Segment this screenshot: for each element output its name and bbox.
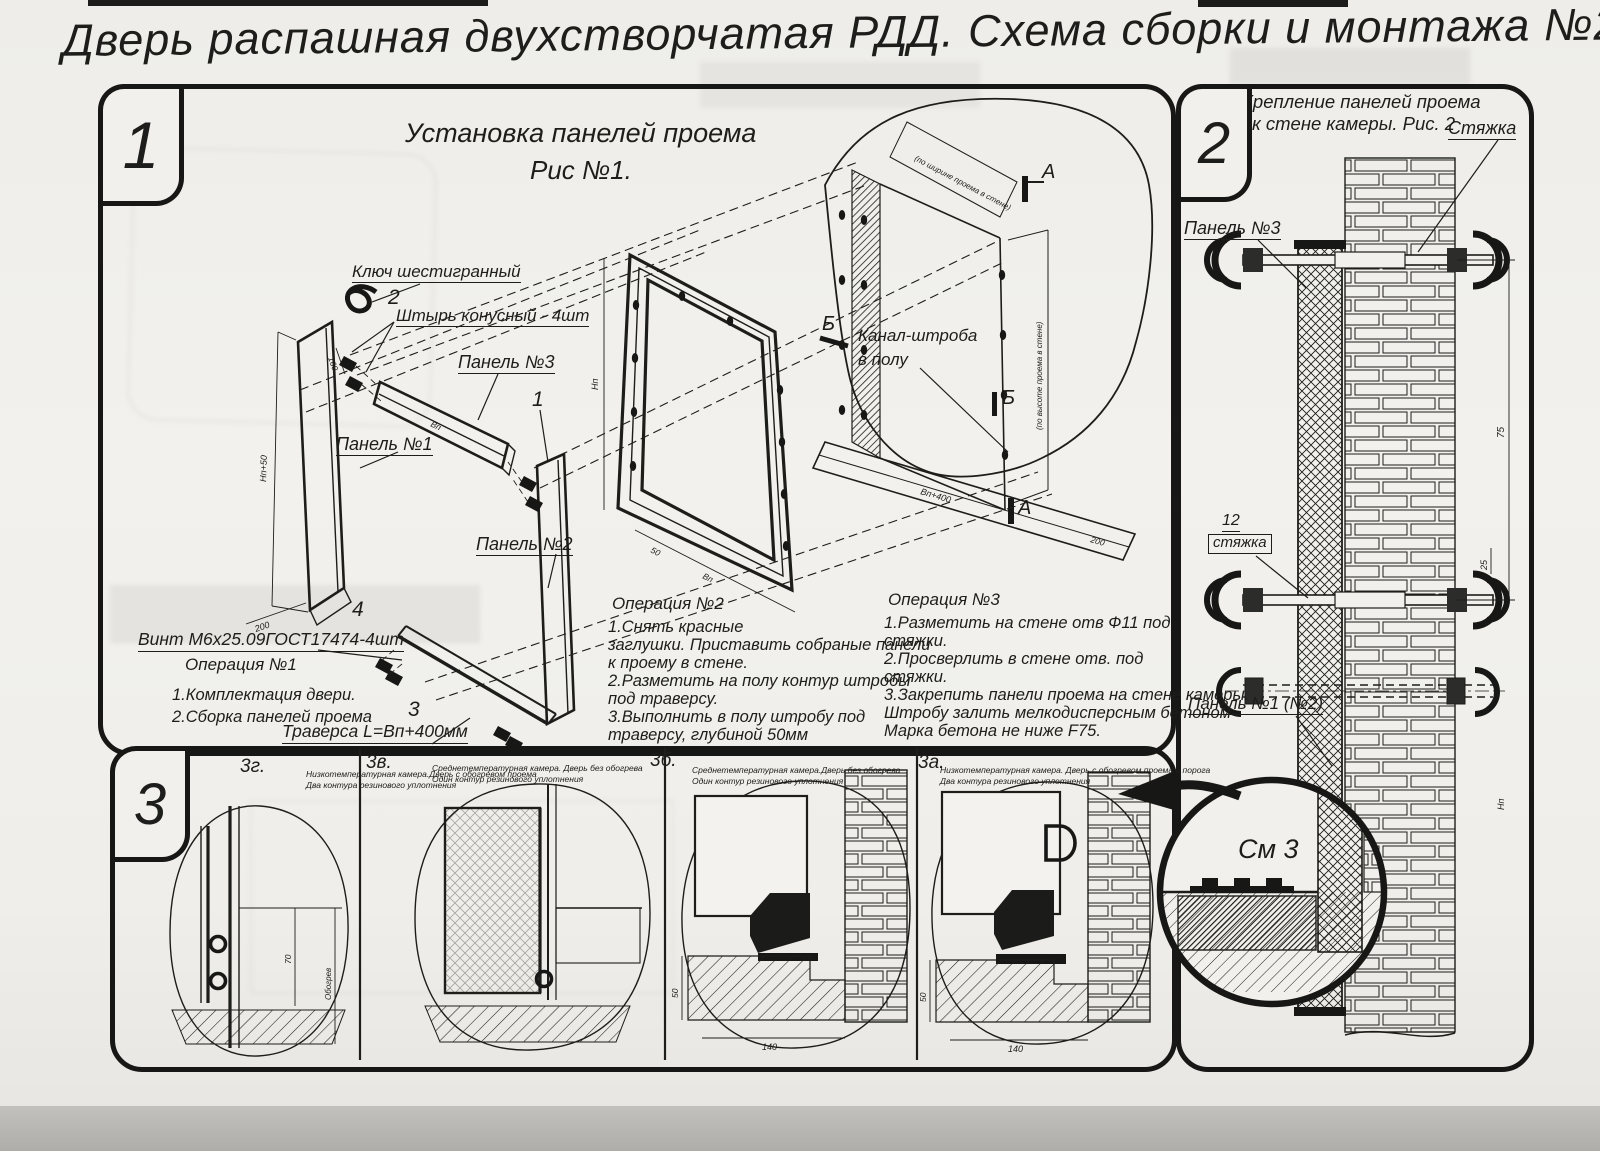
node-3g-drawing: 70 Обогрев: [170, 806, 348, 1056]
op2-line-3: к проему в стене.: [608, 654, 748, 672]
fig1-title-line2: Рис №1.: [530, 156, 632, 185]
label-see-detail-3: См 3: [1238, 834, 1299, 864]
detail-content: [1130, 760, 1420, 1004]
op2-line-5: под траверсу.: [608, 690, 718, 708]
label-panel-1: Панель №1: [336, 434, 433, 456]
dim-vp400: Вп+400: [919, 486, 952, 504]
label-channel-line2: в полу: [858, 350, 908, 369]
dim-75: 75: [1496, 426, 1507, 438]
dim-np: Нп: [590, 379, 600, 390]
node-3v-desc1: Среднетемпературная камера. Дверь без об…: [432, 764, 643, 774]
op1-line-2: 2.Сборка панелей проема: [172, 708, 372, 726]
dim-50-3b: 50: [670, 988, 680, 998]
callout-3: 3: [408, 698, 420, 722]
see-detail-arrowhead: [1118, 772, 1174, 810]
node-3a-desc1: Низкотемпературная камера. Дверь с обогр…: [940, 766, 1210, 776]
drawing-sheet: Дверь распашная двухстворчатая РДД. Схем…: [0, 0, 1600, 1151]
badge-3-number: 3: [134, 771, 166, 838]
node-3v-desc2: Один контур резинового уплотнения: [432, 775, 583, 785]
op2-line-6: 3.Выполнить в полу штробу под: [608, 708, 865, 726]
op2-line-7: траверсу, глубиной 50мм: [608, 726, 808, 744]
label-cone-pin: Штырь конусный - 4шт: [396, 306, 589, 327]
dim-200b: 200: [1088, 534, 1106, 548]
scan-edge-artifact: [88, 0, 488, 6]
label-panel-2: Панель №2: [476, 534, 573, 556]
label-hex-key: Ключ шестигранный: [352, 262, 521, 283]
dim-70: 70: [283, 954, 293, 964]
dimension-lines: [246, 332, 528, 674]
op1-title: Операция №1: [185, 655, 297, 674]
op3-line-6: Штробу залить мелкодисперсным бетоном: [884, 704, 1231, 722]
label-channel-line1: Канал-штроба: [858, 326, 977, 345]
frame-and-wall-drawing: (по ширине проема в стене) (по высоте пр…: [590, 90, 1170, 660]
dim-50: 50: [649, 545, 662, 558]
badge-2-number: 2: [1198, 110, 1230, 177]
node-3a-desc2: Два контура резинового уплотнения: [940, 777, 1090, 787]
fig2-title-line2: к стене камеры. Рис. 2: [1252, 114, 1455, 135]
label-panel-3: Панель №3: [458, 352, 555, 374]
dim-140-3b: 140: [762, 1042, 777, 1052]
panel-2-bar: [537, 454, 574, 724]
op3-line-1: 1.Разметить на стене отв Ф11 под: [884, 614, 1170, 632]
op2-line-1: 1.Снять красные: [608, 618, 743, 636]
label-panel3-sec2: Панель №3: [1184, 218, 1281, 240]
node-3b-drawing: 50 140: [670, 770, 910, 1052]
label-pos-12: 12: [1222, 512, 1240, 532]
callout-4: 4: [352, 598, 364, 622]
mark-a-top: А: [1041, 161, 1055, 183]
panel-top-cap: [1294, 240, 1346, 249]
label-pos-12-name: стяжка: [1208, 534, 1272, 554]
dim-50-3a: 50: [918, 992, 928, 1002]
node-3b-desc1: Среднетемпературная камера.Дверь без обо…: [692, 766, 900, 776]
op3-line-7: Марка бетона не ниже F75.: [884, 722, 1101, 740]
detail-circle-drawing: [1090, 740, 1520, 1070]
badge-1-number: 1: [123, 107, 160, 183]
mark-b-left: Б: [822, 313, 835, 335]
node-3b-desc2: Один контур резинового уплотнения: [692, 777, 843, 787]
dim-np50: Нп+50: [258, 455, 269, 482]
dim-140-3a: 140: [1008, 1044, 1023, 1054]
sheet-title: Дверь распашная двухстворчатая РДД. Схем…: [62, 0, 1552, 66]
dim-25: 25: [1479, 559, 1489, 571]
op3-line-3: 2.Просверлить в стене отв. под: [884, 650, 1143, 668]
node-3b-id: 3б.: [650, 750, 677, 771]
label-tie: Стяжка: [1448, 118, 1516, 140]
op2-line-2: заглушки. Приставить собраные панели: [608, 636, 930, 654]
op2-title: Операция №2: [612, 594, 724, 613]
callout-1: 1: [532, 388, 544, 412]
section-3-drawings: 70 Обогрев 50 140: [110, 748, 1167, 1060]
traverse-bar: [398, 626, 556, 724]
mark-a-bottom: А: [1017, 497, 1031, 519]
panel-3-bar: [374, 382, 515, 475]
dim-opening-width: (по ширине проема в стене): [913, 154, 1013, 213]
fig1-title-line1: Установка панелей проема: [405, 118, 756, 148]
node-3v-id: 3в.: [366, 752, 392, 773]
dim-opening-height: (по высоте проема в стене): [1035, 321, 1044, 430]
node-3v-drawing: [415, 784, 650, 1050]
door-frame: [618, 255, 792, 590]
label-panel-1-2: Панель №1 (№2): [1188, 694, 1323, 715]
exploded-panels-drawing: Нп+50 200 160 Вп: [130, 270, 650, 750]
dim-vp: Вп: [429, 419, 443, 433]
mark-b-right: Б: [1002, 387, 1015, 409]
fig2-title-line1: Крепление панелей проема: [1242, 92, 1481, 113]
section-3-badge: 3: [110, 746, 190, 862]
op3-line-4: стяжки.: [884, 668, 948, 686]
dim-heat: Обогрев: [324, 968, 333, 1000]
section-1-badge: 1: [98, 84, 184, 206]
scan-edge-artifact: [1198, 0, 1348, 7]
node-3g-id: 3г.: [240, 756, 265, 777]
op3-title: Операция №3: [888, 590, 1000, 609]
op3-line-2: стяжки.: [884, 632, 948, 650]
scan-bottom-band: [0, 1106, 1600, 1151]
hex-key-icon: [347, 287, 376, 311]
label-screw: Винт М6х25.09ГОСТ17474-4шт: [138, 630, 404, 652]
op1-line-1: 1.Комплектация двери.: [172, 686, 356, 704]
op2-line-4: 2.Разметить на полу контур штробы: [608, 672, 910, 690]
section-2-badge: 2: [1176, 84, 1252, 202]
floor-channel: [813, 442, 1135, 560]
dim-vpb: Вп: [701, 571, 715, 585]
